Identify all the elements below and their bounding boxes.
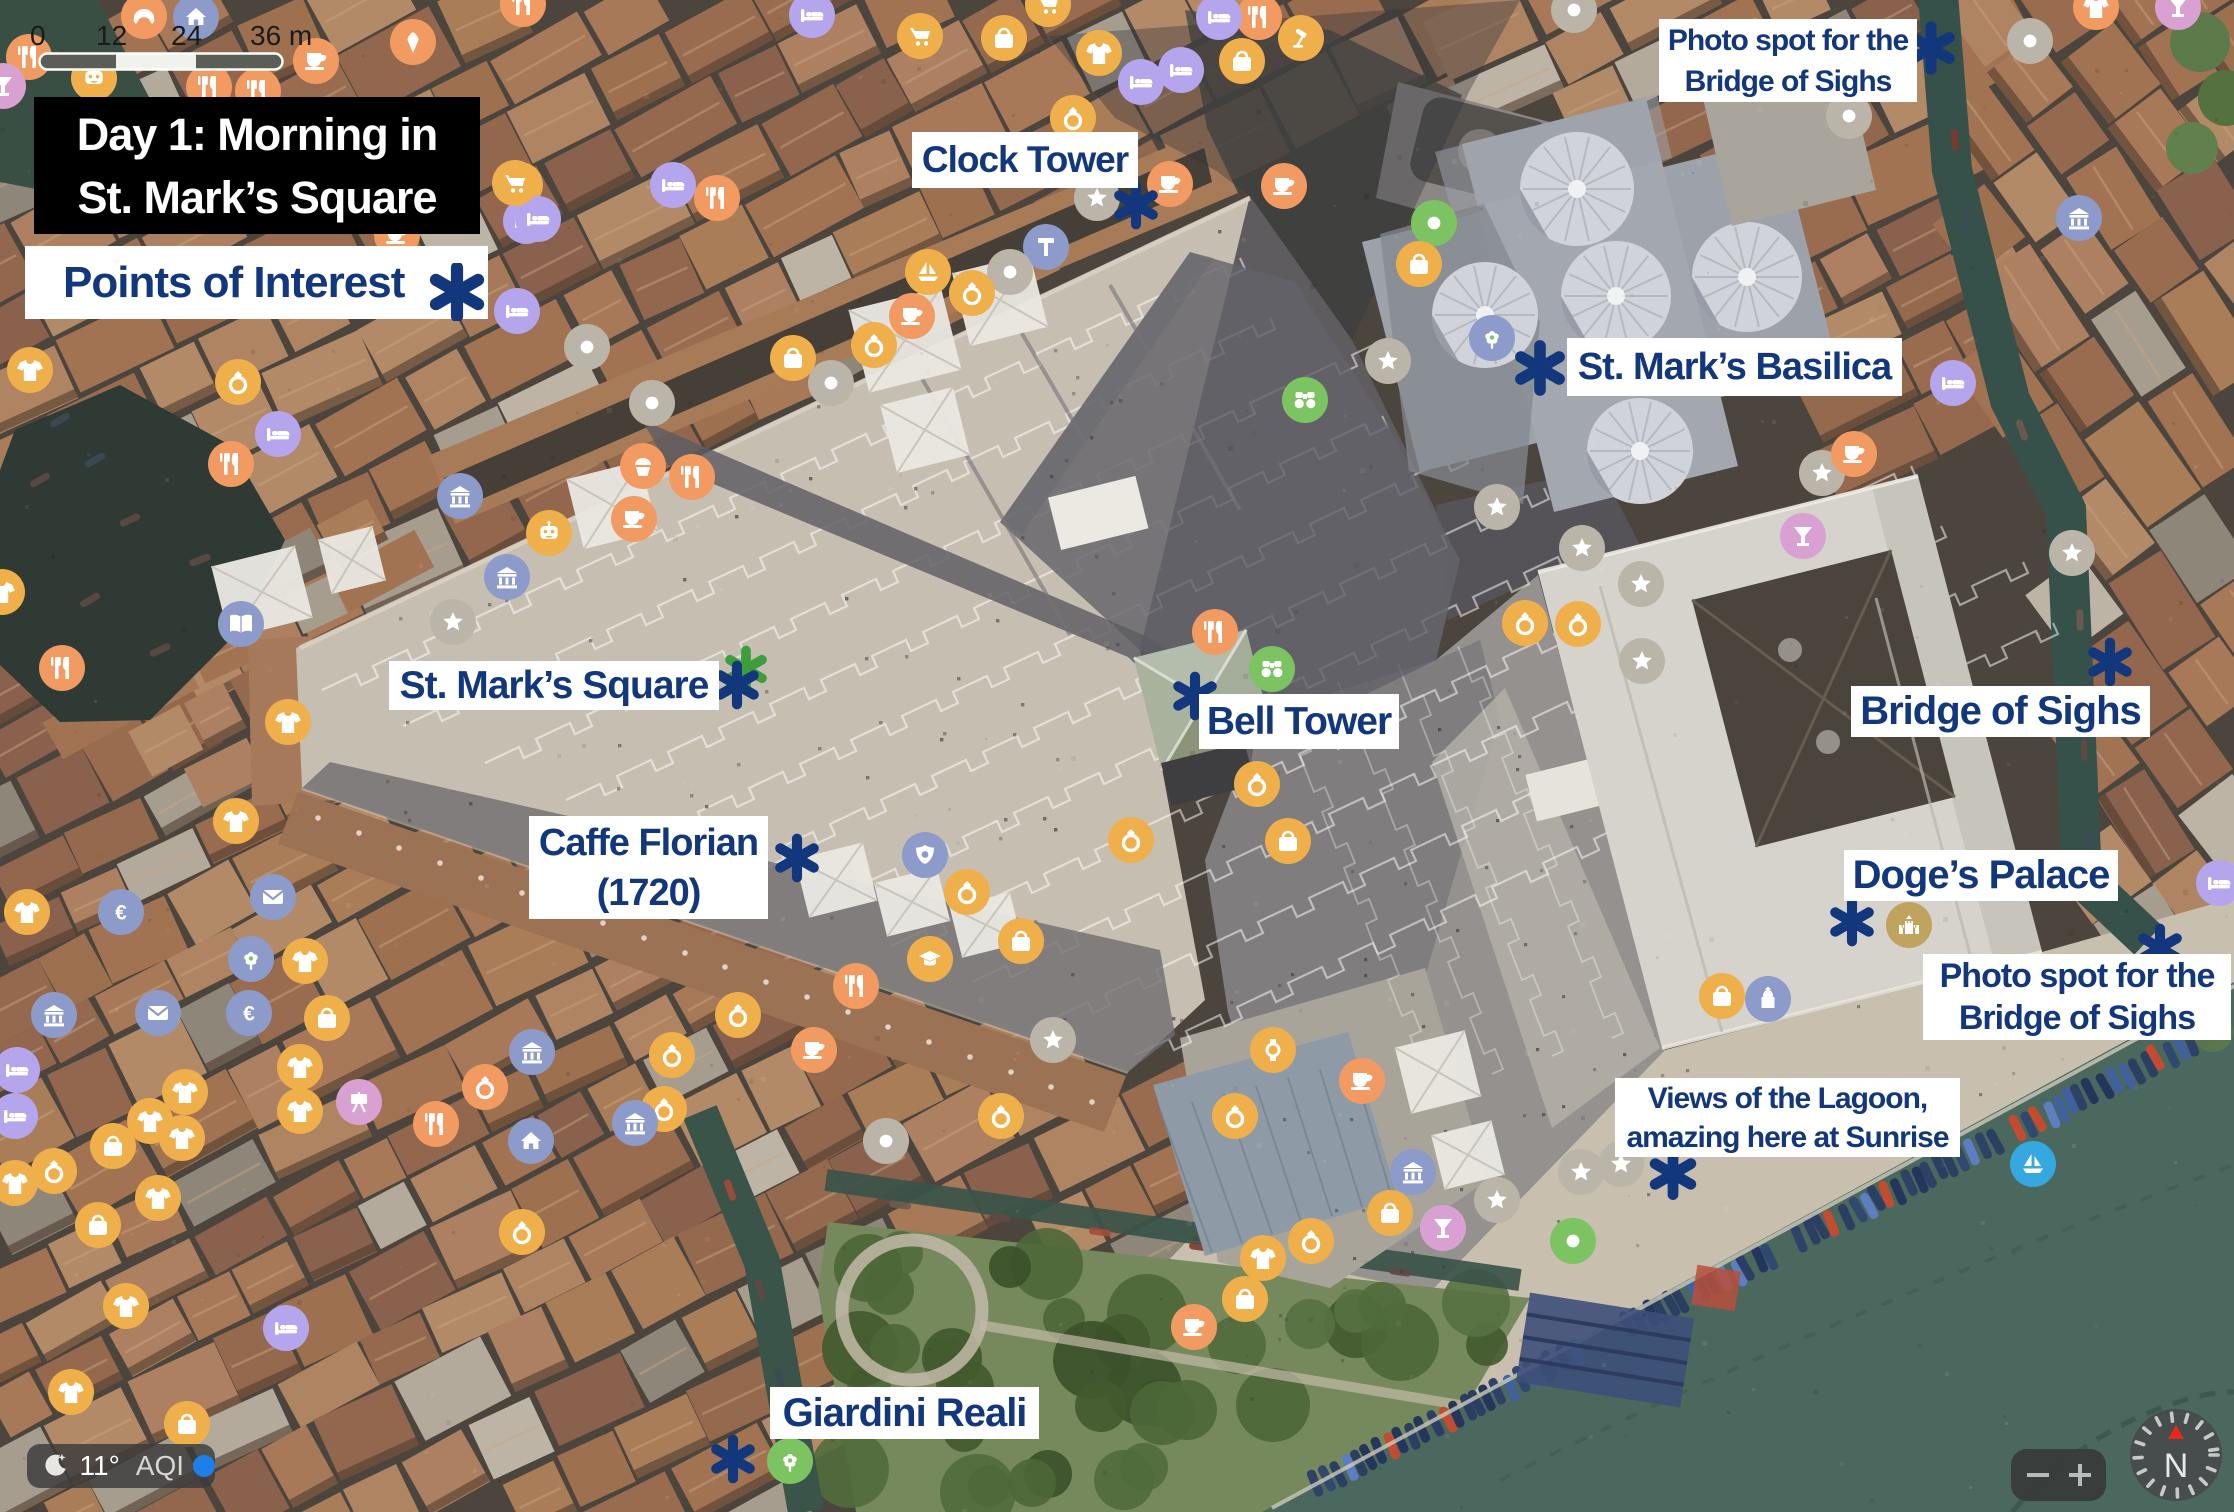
svg-text:N: N — [2164, 1447, 2189, 1485]
